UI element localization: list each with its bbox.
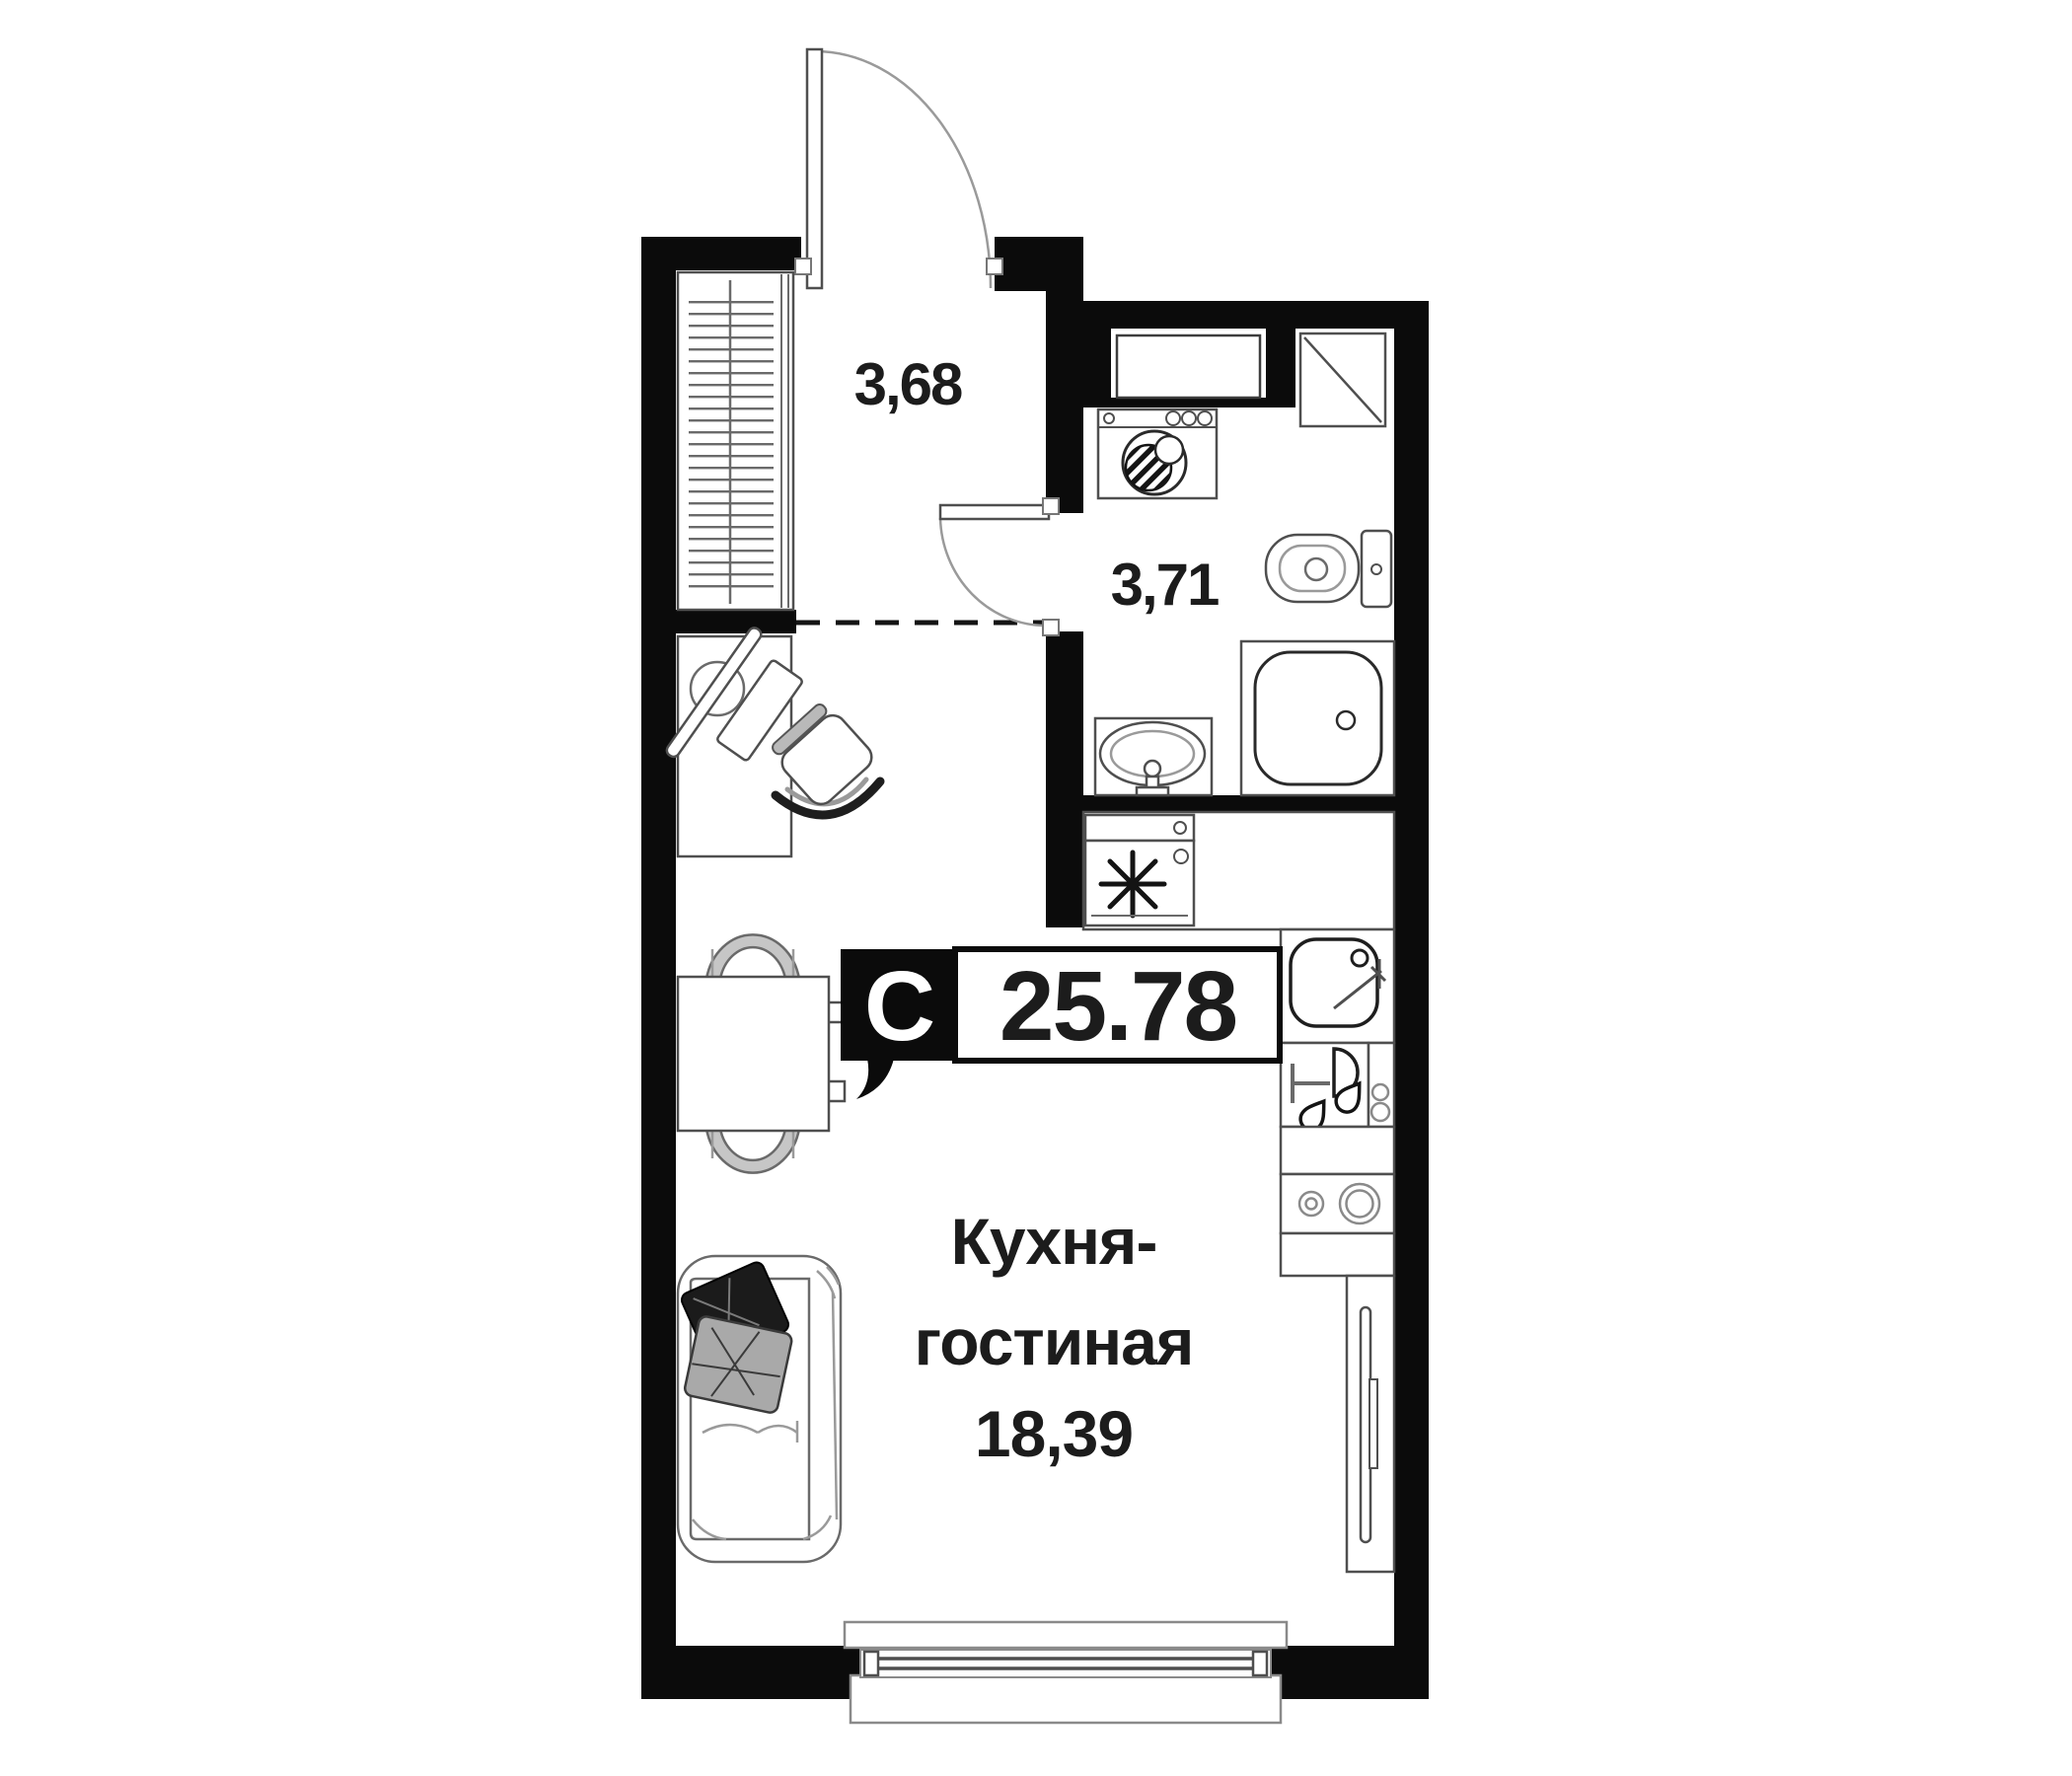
wall-bottom-right [1271,1646,1429,1699]
entrance-door-hinge-plate [795,259,811,274]
floor-plan: 3,68 3,71 Кухня- гостиная 18,39 С 25.78 [0,0,2072,1776]
wall-shaft-bottom-bar [1111,398,1266,407]
hob [1281,1174,1394,1276]
kitchen-sink-drain [1352,950,1368,966]
toilet [1266,531,1391,607]
bathroom-door-leaf [940,505,1049,519]
toilet-drain [1305,558,1327,580]
toilet-tank-button [1371,564,1381,574]
wall-right [1394,301,1429,1699]
wardrobe [678,272,793,610]
window-frame-cap-left [864,1652,878,1675]
knob-circle-1 [1372,1084,1388,1100]
bathroom-door [940,498,1059,635]
bathroom-door-swing-arc [940,518,1046,626]
hob-burner-large-inner [1347,1191,1373,1218]
hob-lower-strip [1281,1233,1394,1276]
shower-drain [1337,711,1355,729]
window-glazing-band [860,1650,1271,1677]
kitchen-counter-gap [1281,1127,1394,1174]
wall-top-left [641,237,801,270]
dining-chair-right-stub-2 [828,1081,845,1101]
wall-partition-hall-bath-lower [1046,631,1083,927]
wall-bottom-left [641,1646,860,1699]
entrance-door [795,49,1002,288]
dining-chair-bottom [706,1129,799,1173]
wall-shaft-post-left [1083,329,1111,407]
vent-shaft [1117,335,1260,398]
wall-partition-hall-bath-upper [1046,237,1083,513]
kitchen-living-name-line2: гостиная [915,1305,1194,1378]
sofa [678,1256,841,1562]
washing-machine-button-1 [1166,411,1180,425]
entrance-door-latch-plate [987,259,1002,274]
kitchen-sink [1281,929,1394,1043]
dining-chair-top [706,934,799,979]
wall-left [641,237,676,1699]
washing-machine-knob [1104,413,1114,423]
badge-type-label: С [864,951,933,1062]
washing-machine-door-glass [1155,436,1183,464]
wall-bathroom-top [1083,301,1429,329]
kitchen-living-area-label: 18,39 [975,1397,1133,1470]
window-frame-cap-right [1253,1652,1267,1675]
refrigerator-strip-knob [1174,822,1186,834]
bathroom-door-hinge-plate [1043,498,1059,514]
refrigerator-knob [1174,850,1188,863]
badge-area-value: 25.78 [999,951,1236,1062]
shower [1241,641,1394,795]
wall-stub-below-wardrobe [641,610,796,633]
dining-table-group [678,934,845,1172]
window [845,1622,1287,1723]
tv-unit [1347,1276,1394,1572]
hob-burner-small-inner [1306,1199,1317,1210]
knob-circle-2 [1371,1103,1389,1121]
badge-tail [856,1059,894,1099]
tv-stand [1369,1379,1377,1468]
wall-shaft-post-right [1266,329,1295,407]
snowflake-icon [1101,852,1164,916]
entrance-door-swing-arc [815,51,991,288]
wash-basin-faucet-head [1145,761,1160,777]
shower-tray [1255,652,1381,784]
area-badge: С 25.78 [841,949,1280,1099]
corner-shelf [1300,333,1385,426]
bathroom-door-latch-plate [1043,620,1059,635]
dining-table [678,977,829,1131]
window-inner-sill [845,1622,1287,1648]
washing-machine-button-3 [1198,411,1212,425]
bathroom-area-label: 3,71 [1111,552,1219,618]
wash-basin [1095,718,1212,795]
entrance-door-leaf [807,49,822,288]
wash-basin-faucet-base [1137,787,1168,795]
kitchen-top-counter [1083,812,1394,929]
window-outer-sill [851,1675,1281,1723]
glassware-cabinet [1281,1043,1394,1134]
hallway-area-label: 3,68 [854,351,962,417]
kitchen-living-name-line1: Кухня- [951,1205,1157,1278]
floor-plan-canvas: 3,68 3,71 Кухня- гостиная 18,39 С 25.78 [0,0,2072,1776]
washing-machine-button-2 [1182,411,1196,425]
washing-machine [1098,409,1217,498]
